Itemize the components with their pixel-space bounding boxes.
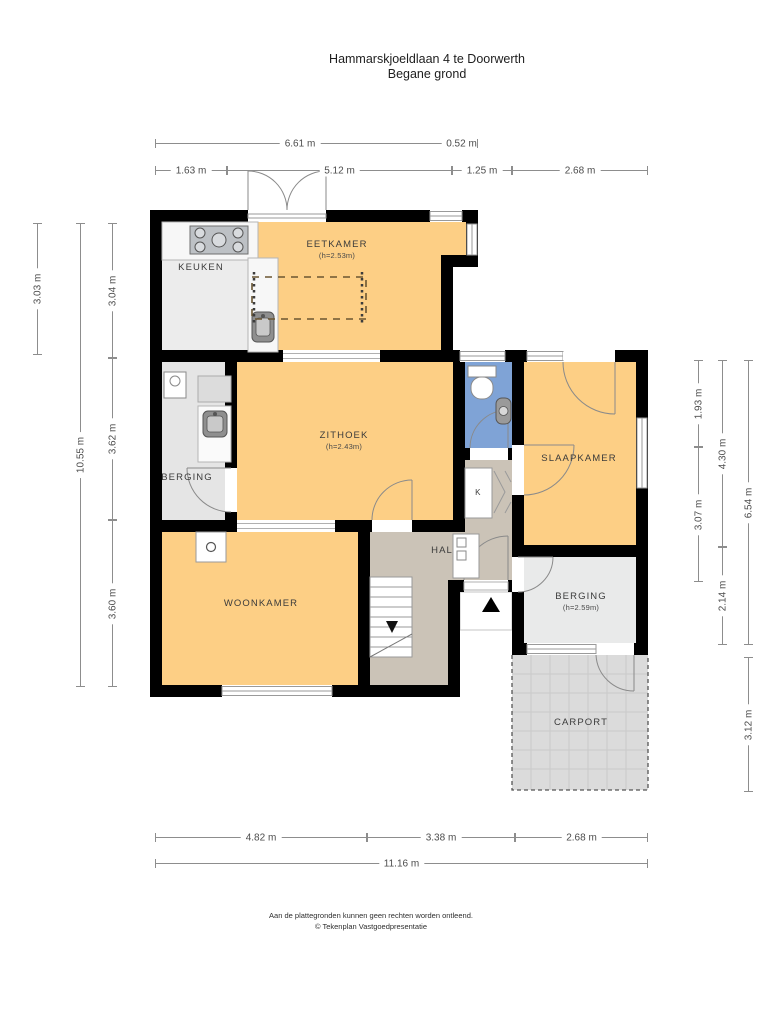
fireplace-icon [196, 532, 226, 562]
room-label-slaapkamer: SLAAPKAMER [541, 453, 616, 465]
room-height-zithoek: (h=2.43m) [320, 442, 369, 452]
window [222, 687, 332, 696]
stove-icon [190, 226, 248, 254]
kitchen-sink-icon [252, 312, 274, 342]
dimension-left-362: 3.62 m [105, 358, 119, 520]
room-height-berging-right: (h=2.59m) [555, 603, 607, 613]
dimension-right-654: 6.54 m [741, 360, 755, 645]
room-label-berging-left: BERGING [161, 472, 213, 484]
window [527, 352, 563, 361]
toilet-sink-icon [496, 398, 511, 424]
dimension-left-303: 3.03 m [30, 223, 44, 355]
dimension-left-1055: 10.55 m [73, 223, 87, 687]
dimension-bottom-482: 4.82 m [155, 830, 367, 844]
dimension-right-307: 3.07 m [691, 447, 705, 582]
window [430, 212, 462, 221]
boiler-icon [164, 372, 186, 398]
room-label-kast: K [475, 488, 481, 498]
footer-line2: © Tekenplan Vastgoedpresentatie [269, 922, 473, 933]
room-label-carport: CARPORT [554, 717, 608, 729]
dimension-right-214: 2.14 m [715, 547, 729, 645]
dimension-right-312: 3.12 m [741, 657, 755, 792]
meter-cabinet [453, 534, 479, 578]
stairs [370, 577, 412, 657]
toilet-icon [468, 366, 496, 399]
window [467, 224, 477, 255]
window [460, 352, 505, 361]
window [527, 645, 596, 654]
washer-icon [198, 376, 231, 402]
dimension-top-163: 1.63 m [155, 163, 227, 177]
footer-disclaimer: Aan de plattegronden kunnen geen rechten… [269, 911, 473, 932]
floorplan-page: Hammarskjoeldlaan 4 te Doorwerth Begane … [0, 0, 768, 1024]
dimension-top-052: 0.52 m [445, 136, 478, 150]
dimension-top-661: 6.61 m [155, 136, 445, 150]
room-label-hal: HAL [431, 545, 453, 557]
room-label-berging-right: BERGING (h=2.59m) [555, 591, 607, 613]
window [637, 418, 647, 488]
dimension-left-304: 3.04 m [105, 223, 119, 358]
dimension-right-193: 1.93 m [691, 360, 705, 447]
storage-sink-icon [203, 411, 227, 437]
dimension-top-512: 5.12 m [227, 163, 452, 177]
room-height-eetkamer: (h=2.53m) [306, 251, 367, 261]
dimension-right-430: 4.30 m [715, 360, 729, 547]
dimension-bottom-1116: 11.16 m [155, 856, 648, 870]
dimension-bottom-338: 3.38 m [367, 830, 515, 844]
footer-line1: Aan de plattegronden kunnen geen rechten… [269, 911, 473, 922]
dimension-top-125: 1.25 m [452, 163, 512, 177]
room-label-woonkamer: WOONKAMER [224, 598, 298, 610]
dimension-bottom-268: 2.68 m [515, 830, 648, 844]
dimension-top-268: 2.68 m [512, 163, 648, 177]
room-label-keuken: KEUKEN [178, 262, 224, 274]
dimension-left-360: 3.60 m [105, 520, 119, 687]
room-label-eetkamer: EETKAMER (h=2.53m) [306, 239, 367, 261]
room-label-zithoek: ZITHOEK (h=2.43m) [320, 430, 369, 452]
